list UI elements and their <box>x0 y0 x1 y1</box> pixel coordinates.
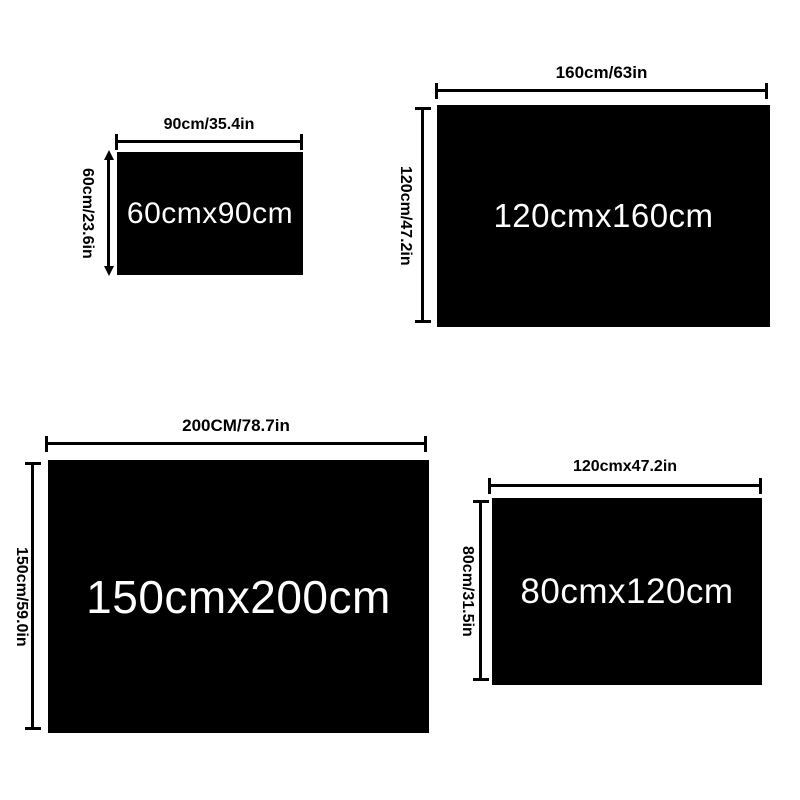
width-dimension-label: 200CM/78.7in <box>45 416 427 436</box>
width-dimension-label: 160cm/63in <box>435 63 768 83</box>
size-swatch: 120cmx160cm <box>437 105 770 327</box>
width-dimension-line <box>435 89 768 92</box>
height-dimension-line <box>479 500 482 681</box>
height-dimension-line <box>421 107 424 323</box>
height-dimension-arrow <box>107 158 110 268</box>
height-dimension-label: 120cm/47.2in <box>390 105 414 327</box>
height-dimension-label: 80cm/31.5in <box>452 498 476 685</box>
size-swatch-label: 60cmx90cm <box>127 197 293 231</box>
size-swatch-label: 80cmx120cm <box>520 572 733 612</box>
width-dimension-line <box>45 442 427 445</box>
width-dimension-line <box>115 140 303 143</box>
height-dimension-line <box>31 462 34 730</box>
width-dimension-label: 90cm/35.4in <box>115 116 303 134</box>
width-dimension-label: 120cmx47.2in <box>488 458 762 476</box>
size-swatch: 60cmx90cm <box>117 152 303 275</box>
height-dimension-label: 60cm/23.6in <box>72 152 96 275</box>
size-swatch: 80cmx120cm <box>492 498 762 685</box>
size-swatch: 150cmx200cm <box>48 460 429 733</box>
size-swatch-label: 120cmx160cm <box>493 197 713 235</box>
size-swatch-label: 150cmx200cm <box>86 570 391 624</box>
size-chart-image: 90cm/35.4in 60cm/23.6in 60cmx90cm 160cm/… <box>0 0 800 800</box>
height-dimension-label: 150cm/59.0in <box>6 460 30 733</box>
width-dimension-line <box>488 484 762 487</box>
